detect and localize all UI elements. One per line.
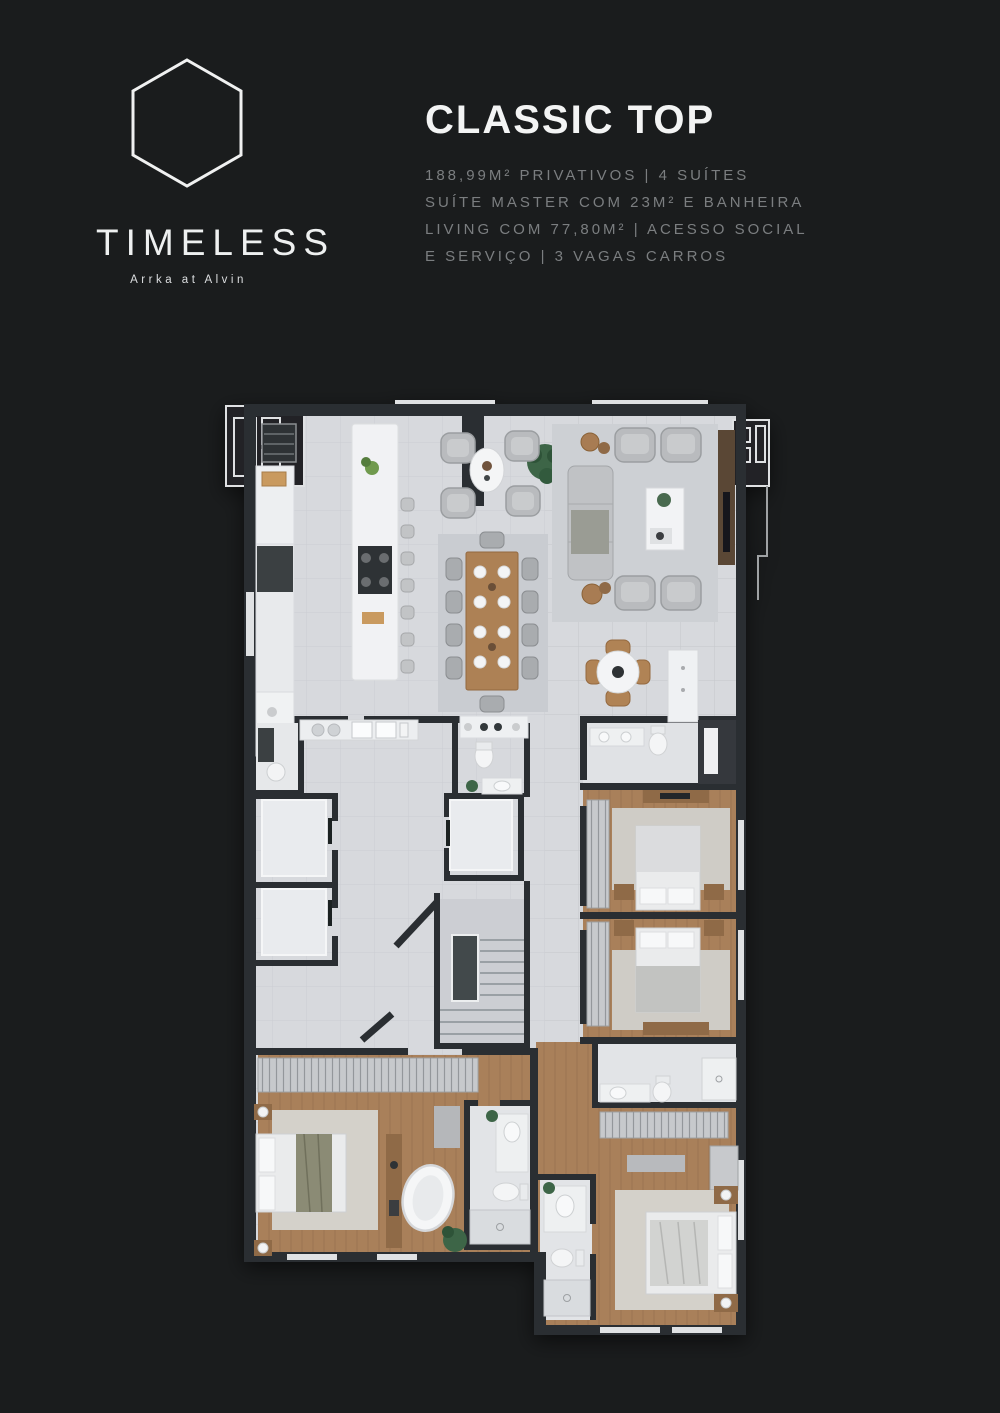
- nightstand: [704, 884, 724, 900]
- olive-throw: [296, 1134, 332, 1212]
- shower: [544, 1280, 590, 1316]
- bench: [434, 1106, 460, 1148]
- laundry: [300, 720, 418, 740]
- bench: [627, 1155, 685, 1172]
- vanity: [590, 728, 644, 746]
- stairwell: [440, 899, 524, 1043]
- oven-cabinet: [257, 546, 293, 592]
- nightstand: [614, 920, 634, 936]
- dresser: [643, 1022, 709, 1035]
- toilet: [493, 1183, 519, 1201]
- stair-void: [452, 935, 478, 1001]
- bath-vanity: [386, 1134, 402, 1248]
- shower-tray: [702, 1058, 736, 1100]
- dining-area: [438, 532, 548, 712]
- suite-1: [587, 790, 730, 910]
- toilet: [653, 1082, 671, 1102]
- nightstand: [704, 920, 724, 936]
- floor-plan: [0, 0, 1000, 1413]
- blanket: [636, 966, 700, 1012]
- toilet: [649, 733, 667, 755]
- plant: [466, 780, 478, 792]
- poster-page: TIMELESS Arrka at Alvin CLASSIC TOP 188,…: [0, 0, 1000, 1413]
- toilet: [551, 1249, 573, 1267]
- grill-cabinet: [262, 424, 296, 462]
- balcony-bench: [704, 728, 718, 774]
- throw-blanket: [571, 510, 609, 554]
- nightstand: [614, 884, 634, 900]
- wardrobe: [710, 1146, 738, 1190]
- powder-room: [256, 723, 298, 790]
- cabinet: [668, 650, 698, 722]
- shower: [470, 1210, 530, 1244]
- cooktop: [358, 546, 392, 594]
